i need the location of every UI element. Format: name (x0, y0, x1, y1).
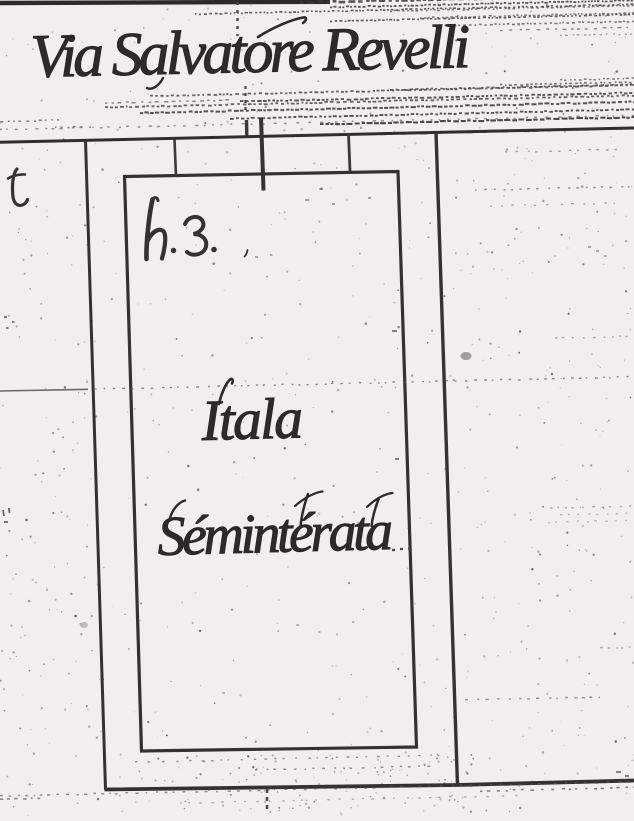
svg-text:Via Salvatore Revelli: Via Salvatore Revelli (30, 13, 470, 91)
svg-text:Itala: Itala (200, 385, 302, 453)
svg-text:Sémintérata: Sémintérata (157, 500, 392, 568)
